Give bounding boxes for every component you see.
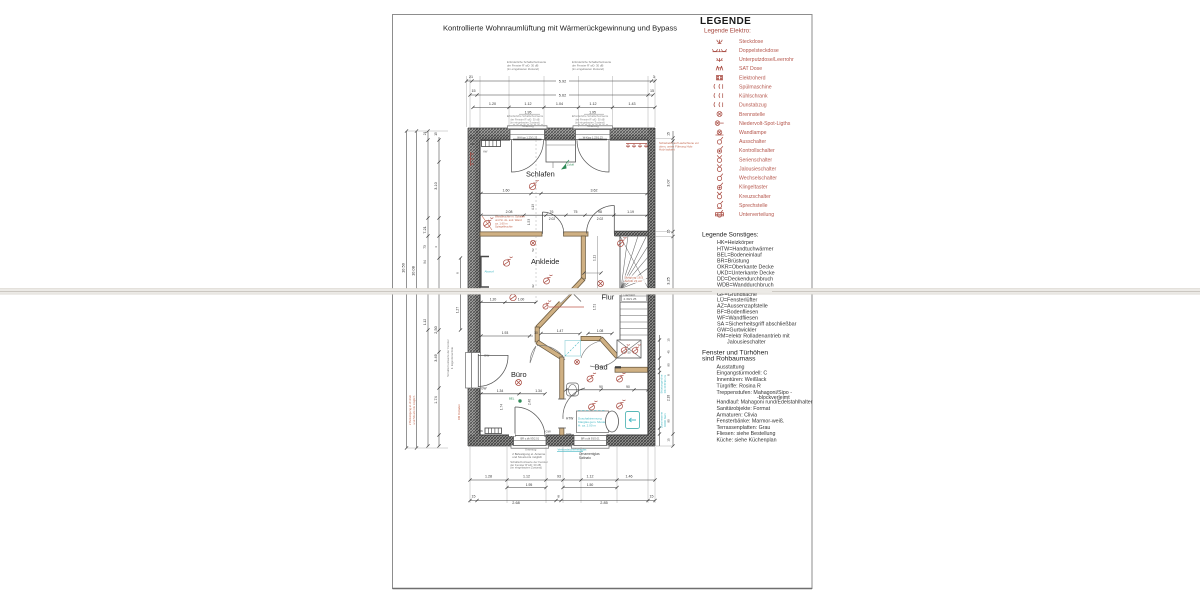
svg-text:-blockverleimt: -blockverleimt [757,395,790,401]
svg-text:3.49: 3.49 [434,354,438,361]
svg-text:GW: GW [566,432,571,436]
svg-text:Innentüren: Weißlack: Innentüren: Weißlack [717,377,767,383]
svg-text:Doppelsteckdose: Doppelsteckdose [739,48,779,54]
svg-text:1.12: 1.12 [524,102,531,106]
svg-text:1.11: 1.11 [593,255,597,261]
svg-text:1.95: 1.95 [589,110,596,114]
svg-text:1.20: 1.20 [490,297,497,301]
svg-text:5.92: 5.92 [559,79,566,83]
svg-text:(im eingebauten Zustand): (im eingebauten Zustand) [572,67,604,71]
svg-text:Holz lackiert: Holz lackiert [659,148,675,152]
svg-text:93: 93 [557,475,561,479]
svg-text:HK: HK [479,429,483,433]
svg-text:HTW: HTW [566,417,573,421]
svg-text:AW: AW [483,150,488,154]
svg-text:Sanitärobjekte: Format: Sanitärobjekte: Format [717,406,771,412]
svg-text:15: 15 [434,132,438,136]
svg-text:1.34: 1.34 [497,389,504,393]
svg-text:Ausschalter: Ausschalter [739,139,766,145]
svg-text:1.95: 1.95 [526,483,533,487]
svg-text:1.12: 1.12 [587,475,594,479]
svg-text:30: 30 [534,331,538,335]
svg-text:15: 15 [650,89,654,93]
svg-text:Wechselschalter: Wechselschalter [739,176,777,182]
svg-text:Kontrollschalter: Kontrollschalter [739,148,775,154]
svg-text:15: 15 [667,438,671,442]
svg-text:1.08: 1.08 [597,329,604,333]
svg-text:Fensterbänke: Marmor-weiß.: Fensterbänke: Marmor-weiß. [717,419,785,425]
svg-text:2.08: 2.08 [506,210,513,214]
svg-text:OK FFB 90 cm: OK FFB 90 cm [663,374,667,393]
svg-text:1.20: 1.20 [489,102,496,106]
svg-text:HK: HK [471,142,475,146]
svg-text:ca. 1.60 m: ca. 1.60 m [495,221,508,225]
svg-text:8: 8 [558,495,560,499]
svg-text:Legende Sonstiges:: Legende Sonstiges: [702,232,759,239]
svg-text:75: 75 [574,210,578,214]
svg-text:1.51: 1.51 [593,304,597,310]
svg-text:1.53: 1.53 [527,219,531,225]
svg-text:Abwurf: Abwurf [485,270,495,274]
svg-text:BR o.dk 93/2.01: BR o.dk 93/2.01 [520,436,539,440]
svg-text:sind Rohbaumass: sind Rohbaumass [702,356,756,363]
svg-text:1.12: 1.12 [523,475,530,479]
svg-text:und St. do. and. Wand: und St. do. and. Wand [495,218,522,222]
svg-text:2.85: 2.85 [600,501,607,505]
svg-text:1.00: 1.00 [518,297,525,301]
svg-text:92: 92 [531,284,535,288]
svg-text:Niedervolt-Spot-Ligths: Niedervolt-Spot-Ligths [739,121,791,127]
svg-text:90: 90 [626,385,630,389]
svg-text:Jalousieschalter: Jalousieschalter [727,340,766,346]
svg-text:1.12: 1.12 [423,319,427,325]
svg-text:15: 15 [472,495,476,499]
svg-text:Türgriffe: Rosina R: Türgriffe: Rosina R [717,384,762,390]
svg-text:2.50: 2.50 [434,326,438,333]
svg-text:Brennstelle: Brennstelle [739,112,765,118]
svg-text:5.62: 5.62 [559,93,566,97]
svg-text:90: 90 [667,363,671,367]
svg-text:1.28: 1.28 [485,475,492,479]
svg-text:Elektroherd: Elektroherd [739,75,766,81]
svg-text:Jalousieschalter: Jalousieschalter [739,166,776,172]
svg-text:2.18: 2.18 [667,395,671,401]
svg-text:Zuluft: Zuluft [567,163,574,167]
svg-text:Klingeltaster: Klingeltaster [739,185,768,191]
svg-text:98: 98 [598,210,602,214]
svg-text:Kühlschrank: Kühlschrank [739,94,768,100]
svg-text:GW: GW [484,354,489,358]
svg-text:(im eingebauten Zustand): (im eingebauten Zustand) [510,466,542,470]
svg-text:1.95: 1.95 [525,110,532,114]
svg-text:lt. Eigentümerliste: lt. Eigentümerliste [450,346,454,369]
svg-text:Spülmaschine: Spülmaschine [739,84,772,90]
svg-text:(im eingebauten Zustand): (im eingebauten Zustand) [507,67,539,71]
svg-text:3: 3 [653,75,655,79]
svg-text:1.12: 1.12 [589,102,596,106]
svg-text:1.60: 1.60 [503,189,510,193]
svg-text:Armaturen: Clivia: Armaturen: Clivia [717,412,758,418]
svg-text:1.34: 1.34 [535,389,542,393]
svg-text:Steckdose: Steckdose [739,39,763,45]
svg-text:1.46: 1.46 [626,475,633,479]
svg-text:W-Kipp 1.23/1.23: W-Kipp 1.23/1.23 [583,136,604,140]
svg-text:15: 15 [471,89,475,93]
svg-text:94: 94 [423,260,427,264]
svg-text:RM Rolladen: RM Rolladen [457,403,461,420]
svg-text:1.04: 1.04 [556,102,563,106]
svg-text:2.40: 2.40 [528,399,532,405]
svg-text:1.74: 1.74 [434,396,438,403]
svg-text:4.19: 4.19 [531,204,535,210]
svg-text:2.02: 2.02 [549,217,556,221]
svg-text:15: 15 [650,495,654,499]
svg-text:Verbundsicherheitsglas: Verbundsicherheitsglas [558,447,588,451]
svg-text:10.50: 10.50 [401,262,406,273]
svg-text:52: 52 [531,248,535,252]
svg-text:Legende Elektro:: Legende Elektro: [704,28,751,35]
svg-text:10.08: 10.08 [411,266,416,276]
svg-text:und SA att-mts möglich: und SA att-mts möglich [512,455,542,459]
svg-text:73: 73 [423,245,427,249]
svg-text:W-Kipp 1.23/1.23: W-Kipp 1.23/1.23 [517,136,538,140]
svg-text:3.10: 3.10 [434,182,438,189]
svg-text:90: 90 [599,385,603,389]
svg-text:Fliesen: siehe Bestellung: Fliesen: siehe Bestellung [717,431,776,437]
svg-text:15: 15 [667,132,671,136]
svg-text:1.93: 1.93 [502,331,509,335]
svg-text:1.43: 1.43 [628,102,635,106]
svg-text:21: 21 [423,132,427,136]
svg-text:Terrassenplatten: Grau: Terrassenplatten: Grau [717,425,771,431]
svg-text:GW: GW [546,430,551,434]
svg-text:Büro: Büro [511,370,527,379]
svg-text:90: 90 [667,419,671,423]
svg-text:und SA att-mts möglich: und SA att-mts möglich [412,395,416,424]
svg-text:SAT Dose: SAT Dose [739,66,762,72]
svg-text:Unterverteilung: Unterverteilung [739,212,774,218]
svg-text:GW: GW [481,387,487,391]
svg-text:50: 50 [627,351,631,355]
svg-text:3.62: 3.62 [591,189,598,193]
svg-text:3.07: 3.07 [667,179,671,186]
svg-text:45: 45 [667,350,671,354]
svg-text:BR o.dk 93/2.01: BR o.dk 93/2.01 [581,436,600,440]
svg-text:WDB=Wanddurchbruch: WDB=Wanddurchbruch [717,283,774,289]
svg-text:Serienschalter: Serienschalter [739,157,772,163]
svg-text:Küche: siehe Küchenplan: Küche: siehe Küchenplan [717,437,777,443]
svg-text:2.68: 2.68 [512,501,519,505]
svg-text:Schlafen: Schlafen [526,170,555,179]
svg-text:15: 15 [667,338,671,342]
svg-text:Unterputzdose/Leerrohr: Unterputzdose/Leerrohr [739,57,794,63]
svg-text:Sprechstelle: Sprechstelle [739,203,768,209]
svg-text:Wandleuchte m. Schalter: Wandleuchte m. Schalter [495,215,525,219]
svg-text:2.02: 2.02 [597,217,604,221]
svg-text:3.25: 3.25 [667,277,671,284]
svg-text:Unterzug: Unterzug [525,448,537,452]
svg-text:90/90 flach: 90/90 flach [663,413,667,427]
svg-text:1.19: 1.19 [627,210,634,214]
svg-text:Kreuzschalter: Kreuzschalter [739,194,771,200]
svg-text:Wandlampe: Wandlampe [739,130,767,136]
svg-text:LEGENDE: LEGENDE [700,16,751,27]
svg-text:Kontrollierte Wohnraumlüftung: Kontrollierte Wohnraumlüftung mit Wärmer… [443,24,677,33]
svg-text:1.50: 1.50 [587,483,594,487]
svg-text:Auftritt 23 cm: Auftritt 23 cm [625,279,643,283]
svg-text:21: 21 [469,75,473,79]
svg-text:76: 76 [550,210,554,214]
svg-text:1.74: 1.74 [500,404,504,410]
svg-text:1.47: 1.47 [557,329,564,333]
svg-text:2.30/1.25: 2.30/1.25 [624,297,637,301]
svg-text:Satinato: Satinato [579,456,591,460]
svg-text:Eingangstürmodell: C: Eingangstürmodell: C [717,371,768,377]
svg-text:Ausstattung: Ausstattung [717,364,745,370]
svg-text:H: ca. 2.00 m: H: ca. 2.00 m [578,424,596,428]
svg-text:BEL: BEL [509,397,515,401]
svg-text:7.21: 7.21 [422,226,427,234]
svg-text:Dunstabzug: Dunstabzug [739,103,767,109]
svg-text:1.27: 1.27 [456,307,460,313]
svg-text:Ankleide: Ankleide [531,257,559,266]
svg-text:Spiegelleuchte: Spiegelleuchte [495,225,513,229]
